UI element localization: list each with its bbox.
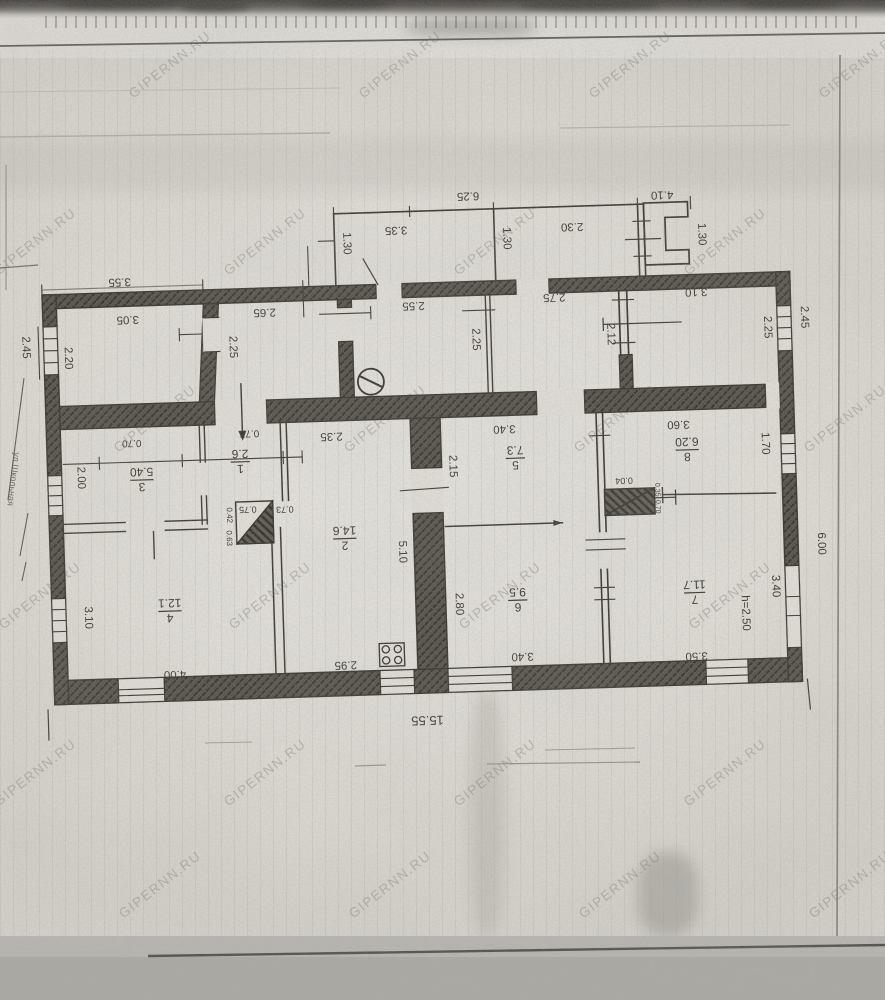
svg-text:4.10: 4.10 (651, 188, 674, 201)
svg-text:2: 2 (341, 539, 348, 553)
svg-text:7.3: 7.3 (506, 443, 523, 458)
svg-text:8: 8 (684, 450, 691, 464)
svg-text:2.6: 2.6 (231, 447, 248, 462)
svg-text:0.70: 0.70 (654, 500, 661, 514)
svg-text:1.30: 1.30 (500, 227, 513, 250)
svg-text:6: 6 (514, 600, 521, 614)
svg-text:2.12: 2.12 (604, 323, 617, 346)
svg-text:0.70: 0.70 (121, 437, 141, 449)
svg-text:1: 1 (237, 462, 244, 476)
svg-text:2.20: 2.20 (62, 347, 75, 370)
svg-text:2.45: 2.45 (19, 336, 32, 359)
svg-text:6.20: 6.20 (675, 434, 699, 449)
svg-text:7: 7 (691, 593, 698, 607)
svg-text:1.70: 1.70 (759, 432, 772, 455)
svg-text:3: 3 (138, 480, 145, 494)
svg-text:h=2.50: h=2.50 (739, 595, 752, 631)
svg-text:1.30: 1.30 (695, 223, 708, 246)
svg-text:14.6: 14.6 (332, 523, 356, 538)
svg-text:3.60: 3.60 (667, 418, 690, 431)
svg-text:3.50: 3.50 (685, 649, 708, 662)
svg-text:6.00: 6.00 (815, 532, 828, 555)
svg-text:2.30: 2.30 (561, 220, 584, 233)
svg-text:0.63: 0.63 (224, 530, 234, 546)
svg-text:2.80: 2.80 (453, 593, 466, 616)
svg-text:6.25: 6.25 (457, 189, 480, 202)
svg-text:0.73: 0.73 (276, 504, 294, 515)
svg-text:12.1: 12.1 (158, 596, 182, 611)
svg-text:0.35: 0.35 (653, 483, 660, 497)
svg-text:5.40: 5.40 (129, 465, 153, 480)
svg-text:2.55: 2.55 (402, 299, 425, 312)
svg-text:3.05: 3.05 (116, 313, 139, 326)
svg-text:5: 5 (512, 458, 519, 472)
svg-text:0.04: 0.04 (615, 476, 633, 487)
svg-text:2.15: 2.15 (446, 455, 459, 478)
svg-text:2.35: 2.35 (320, 430, 343, 443)
svg-text:2.95: 2.95 (334, 658, 357, 671)
svg-text:9.5: 9.5 (509, 585, 526, 600)
svg-text:0.42: 0.42 (225, 507, 235, 523)
svg-text:3.40: 3.40 (769, 575, 782, 598)
svg-text:5.10: 5.10 (396, 540, 409, 563)
svg-text:ул.Школьная: ул.Школьная (5, 452, 22, 507)
svg-text:0.75: 0.75 (239, 504, 257, 515)
svg-text:15.55: 15.55 (411, 713, 444, 729)
svg-text:0.77: 0.77 (239, 427, 259, 439)
svg-text:3.35: 3.35 (385, 223, 408, 236)
svg-text:2.25: 2.25 (226, 336, 239, 359)
svg-text:2.75: 2.75 (543, 291, 566, 304)
svg-text:11.7: 11.7 (683, 577, 706, 592)
svg-text:1.30: 1.30 (340, 232, 353, 255)
svg-text:2.65: 2.65 (253, 306, 276, 319)
svg-text:4: 4 (166, 611, 173, 625)
svg-text:3.10: 3.10 (82, 606, 95, 629)
svg-text:2.00: 2.00 (74, 466, 87, 489)
svg-text:2.25: 2.25 (469, 328, 482, 351)
svg-text:2.45: 2.45 (798, 306, 811, 329)
svg-text:2.25: 2.25 (761, 316, 774, 339)
svg-text:3.10: 3.10 (685, 285, 708, 298)
svg-text:3.40: 3.40 (511, 650, 534, 663)
svg-text:3.55: 3.55 (108, 275, 131, 288)
svg-text:4.00: 4.00 (164, 668, 187, 681)
svg-text:3.40: 3.40 (493, 422, 516, 435)
